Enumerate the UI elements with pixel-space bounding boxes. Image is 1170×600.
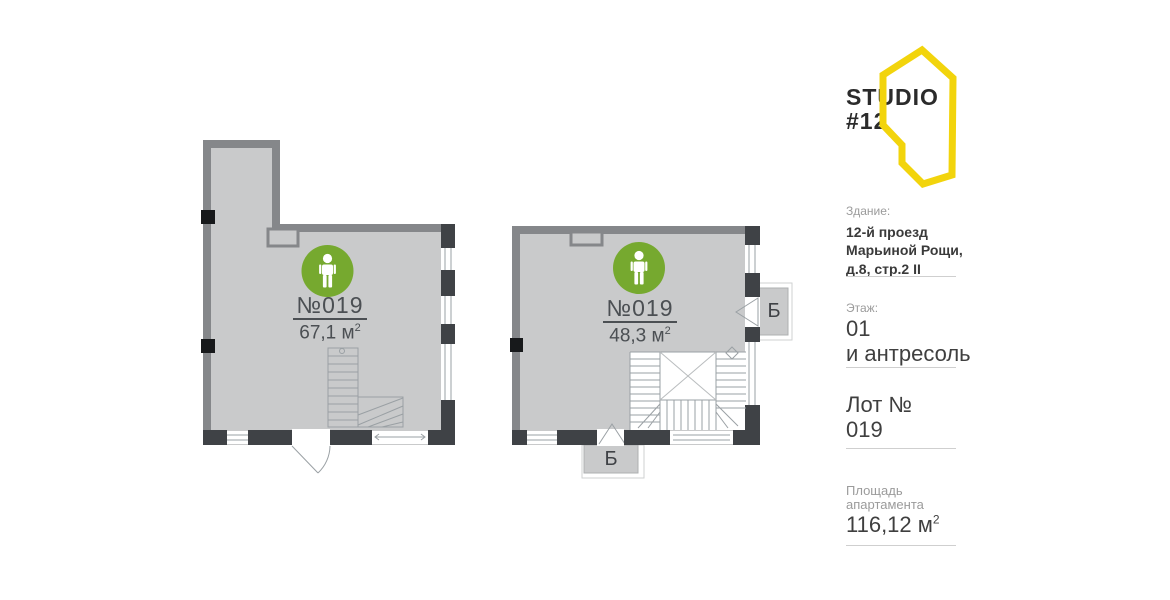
area-label: Площадь апартамента [846,484,924,513]
balcony-label-bottom: Б [584,448,638,471]
apartment-plan-page: №019 67,1 м2 [0,0,1170,600]
balcony-label-right: Б [760,300,788,323]
floor-value: 01 и антресоль [846,317,971,366]
left-plan-area: 67,1 м2 [283,323,377,342]
lot-value: 019 [846,418,912,443]
right-plan-label: №019 48,3 м2 [594,297,686,345]
left-plan-label: №019 67,1 м2 [283,294,377,342]
studio-logo-shape-icon [872,38,964,193]
unit-badge [613,242,665,294]
lot-label: Лот № [846,393,912,418]
floor-plan-mezzanine-level [500,210,805,490]
divider [846,448,956,449]
right-plan-number: №019 [603,297,676,323]
building-label: Здание: [846,205,890,218]
divider [846,276,956,277]
entry-door-arc [292,446,330,473]
floor-label: Этаж: [846,302,878,315]
building-value: 12-й проезд Марьиной Рощи, д.8, стр.2 II [846,223,963,278]
divider [846,367,956,368]
left-plan-number: №019 [293,294,366,320]
right-plan-area: 48,3 м2 [594,326,686,345]
divider [846,545,956,546]
bottom-wall-windows [203,429,455,446]
lot-block: Лот № 019 [846,393,912,442]
unit-badge [302,245,354,297]
area-value: 116,12 м2 [846,513,940,538]
right-wall-windows [441,224,455,445]
